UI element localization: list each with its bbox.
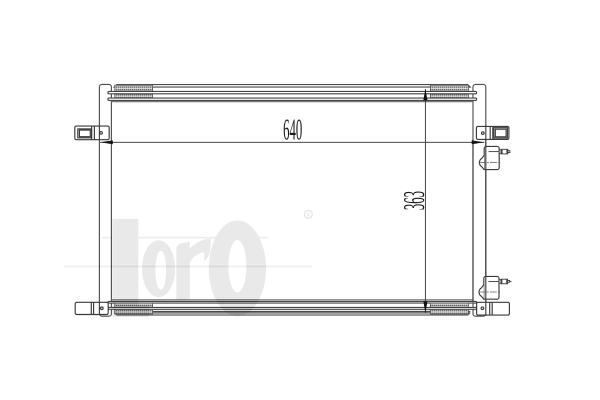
svg-text:640: 640 [283, 113, 302, 147]
svg-text:363: 363 [398, 191, 432, 210]
